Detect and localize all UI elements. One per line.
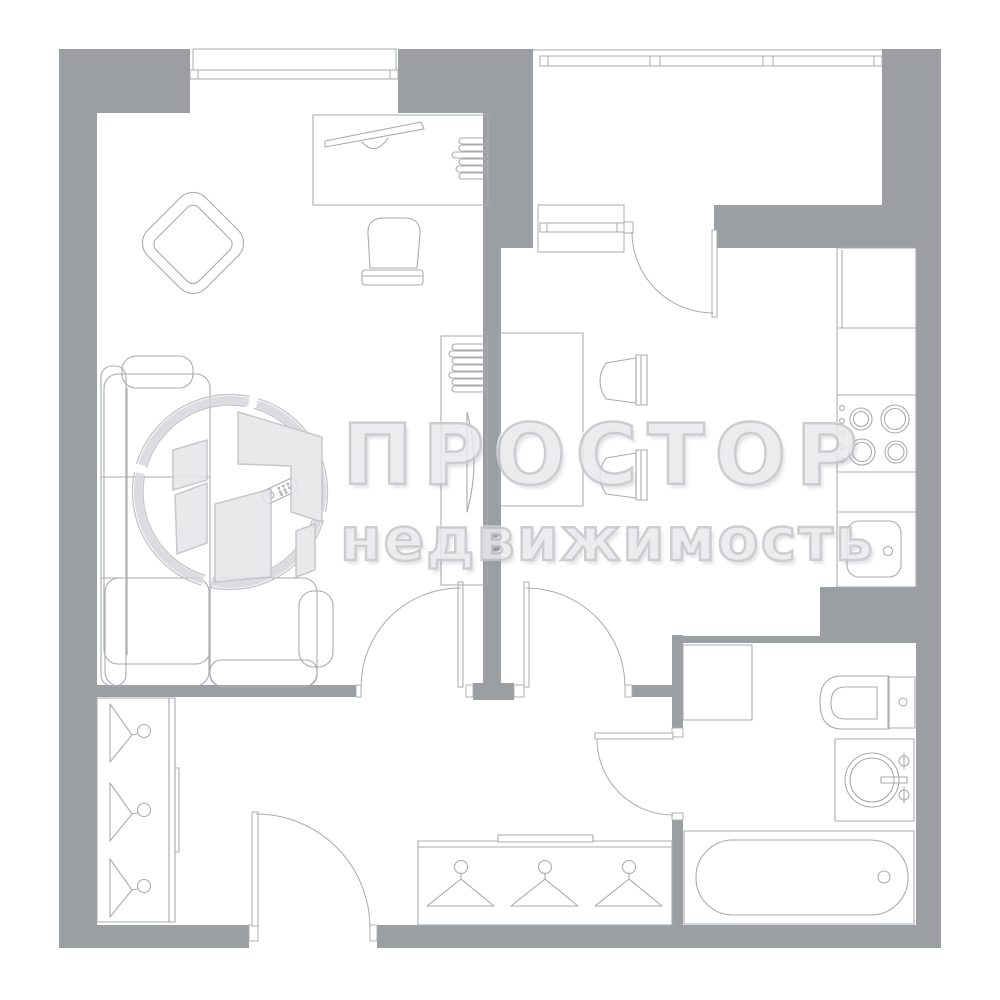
jamb: [370, 925, 377, 941]
wall-living-kitchen-divider: [483, 248, 501, 683]
desk: [313, 115, 488, 205]
wall-bath-left-upper: [672, 635, 683, 728]
jamb: [356, 685, 361, 697]
wall-top-mid: [398, 49, 533, 113]
toilet-icon: [820, 676, 915, 729]
door-jambs: [249, 685, 683, 941]
wall-bottom-left: [59, 925, 249, 948]
kitchen-table: [499, 333, 583, 506]
shelf-stack: [452, 138, 487, 179]
wall-kitchen-top: [714, 205, 941, 248]
wall-bottom-right: [377, 925, 941, 948]
window-living-room: [190, 49, 398, 113]
hanger-icon: [110, 783, 151, 841]
tv-icon: [467, 412, 474, 512]
wall-right: [916, 248, 941, 948]
jamb: [672, 813, 683, 820]
wardrobe: [418, 835, 672, 925]
window-kitchen-balcony: [533, 205, 714, 252]
monitor-icon: [325, 122, 424, 149]
logo-building-icon: [173, 412, 322, 582]
jamb: [672, 728, 683, 737]
jamb: [466, 685, 473, 697]
wall-balcony-right: [882, 49, 941, 205]
kitchen-counter: [837, 248, 916, 587]
wall-kitchen-bath-block: [820, 587, 916, 643]
armchair: [135, 185, 251, 301]
duct-square: [683, 645, 752, 720]
wall-balcony-left-block: [483, 113, 533, 248]
washing-machine-icon: [835, 739, 914, 821]
tv-stand: [441, 336, 487, 585]
kitchen-chair-2: [600, 450, 647, 500]
door-kitchen: [524, 582, 625, 687]
watermark-logo: [108, 370, 351, 613]
wall-hall-stub: [632, 685, 672, 697]
door-bathroom: [595, 733, 673, 815]
hanger-icon: [511, 861, 578, 907]
hanger-icon: [595, 861, 662, 907]
wall-left: [59, 49, 97, 948]
bathtub-icon: [684, 831, 914, 924]
wall-bath-top: [683, 636, 820, 643]
wall-t-junction: [473, 683, 514, 700]
jamb: [625, 685, 632, 697]
hanger-icon: [427, 861, 494, 907]
window-balcony-glazing: [533, 49, 882, 67]
door-entrance: [252, 812, 370, 928]
jamb: [514, 685, 524, 697]
hanger-icon: [110, 704, 151, 762]
hanger-icon: [110, 859, 151, 917]
kitchen-chair-1: [600, 355, 647, 405]
radiator-icon: [449, 344, 485, 392]
door-living-room: [361, 582, 463, 687]
floor-plan-image: ПРОСТОР недвижимость: [0, 0, 1000, 1000]
jamb: [249, 925, 258, 941]
floor-plan-svg: [0, 0, 1000, 1000]
desk-chair: [362, 218, 423, 285]
wall-bath-left-lower: [672, 820, 683, 925]
